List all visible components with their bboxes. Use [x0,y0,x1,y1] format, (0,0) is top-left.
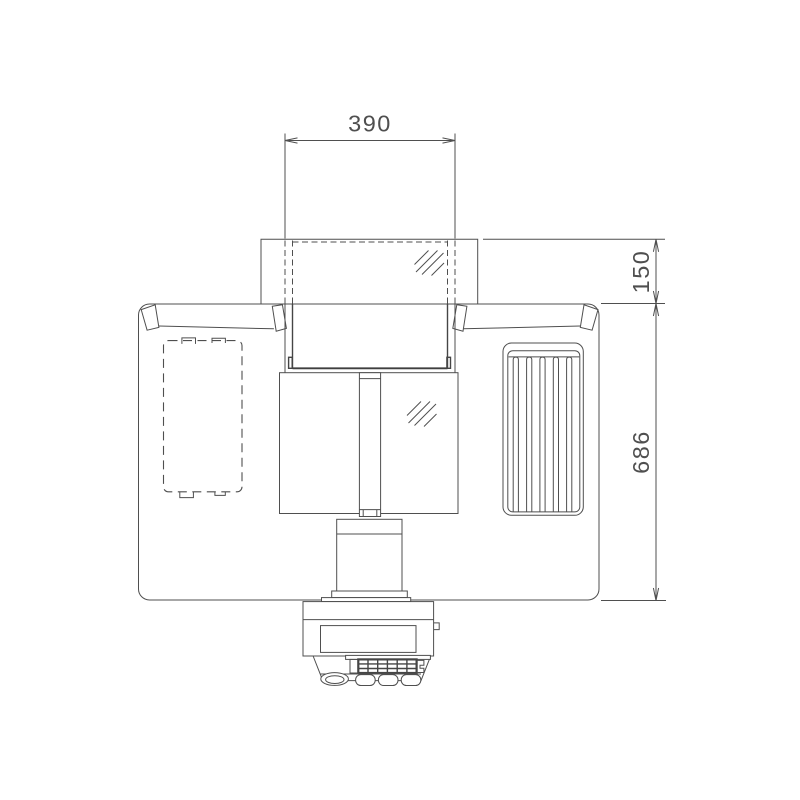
support-bar [359,373,380,517]
flange-lower [322,598,411,602]
chamfer-cap-far-left [141,305,159,330]
vent-slats [513,357,572,512]
dimension-150: 150 [483,239,665,303]
dim-label-upper-height: 150 [628,250,654,294]
glass-hatch-upper [415,251,445,276]
top-duct-outline [261,239,478,303]
connector-buttons [356,675,421,686]
lens [321,673,349,686]
top-cover-strip [141,305,598,332]
dimension-686: 686 [601,304,666,601]
support-bar-body [359,373,380,517]
top-duct-box [261,239,478,303]
side-notch [434,623,440,630]
vent-panel [503,343,583,515]
head-box [303,602,434,656]
head-unit [303,602,439,686]
dim-label-body-height: 686 [628,430,654,474]
duct-corner-post-right [447,357,451,368]
duct-walls [285,304,455,373]
equipment-front-view-drawing: 390 150 686 [0,0,800,800]
column-body [337,519,402,591]
duct-hidden-edges [285,241,455,304]
glass-hatch-lower [407,402,437,427]
dim-label-top-width: 390 [348,111,392,137]
mount-column [322,519,411,601]
technical-drawing-canvas: 390 150 686 [0,0,800,800]
clip-tab-bottom-left [180,492,194,498]
chamfer-cap-left-of-duct [272,305,286,332]
strip-edge-right [463,326,580,329]
dimension-390: 390 [285,111,455,239]
cutout-hidden-outline [164,341,243,492]
strip-edge-left [159,326,274,329]
chamfer-cap-far-right [580,305,598,330]
left-cutout [164,338,243,498]
flange-upper [332,591,408,598]
vent-outer [503,343,583,515]
duct-corner-post-left [289,357,293,368]
